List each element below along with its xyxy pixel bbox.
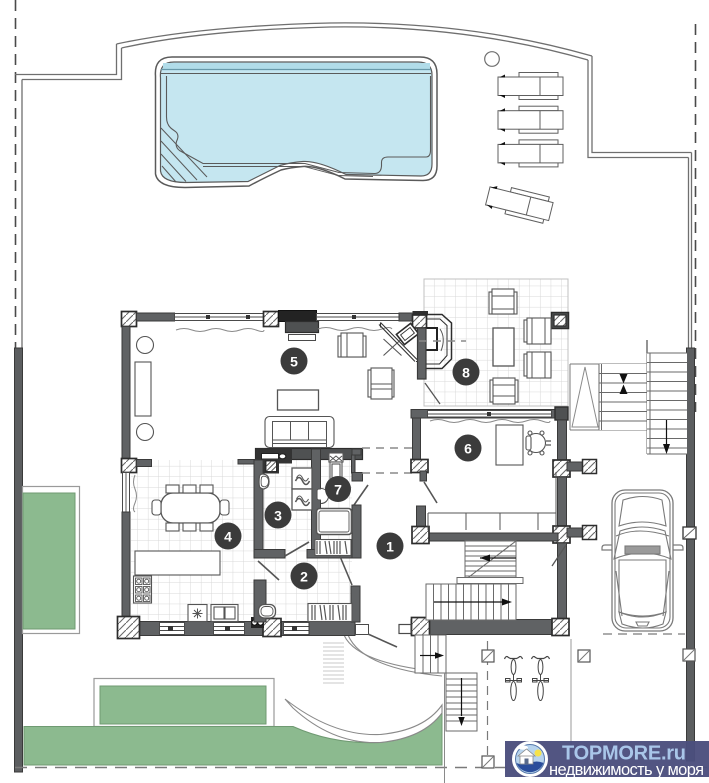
svg-text:7: 7 xyxy=(334,482,342,498)
svg-text:8: 8 xyxy=(462,365,470,381)
svg-text:недвижимость у моря: недвижимость у моря xyxy=(549,761,704,779)
svg-text:6: 6 xyxy=(464,441,472,457)
svg-text:4: 4 xyxy=(224,529,232,545)
svg-text:2: 2 xyxy=(300,569,308,585)
svg-text:5: 5 xyxy=(290,354,298,370)
svg-text:3: 3 xyxy=(274,508,282,524)
svg-text:1: 1 xyxy=(386,539,394,555)
